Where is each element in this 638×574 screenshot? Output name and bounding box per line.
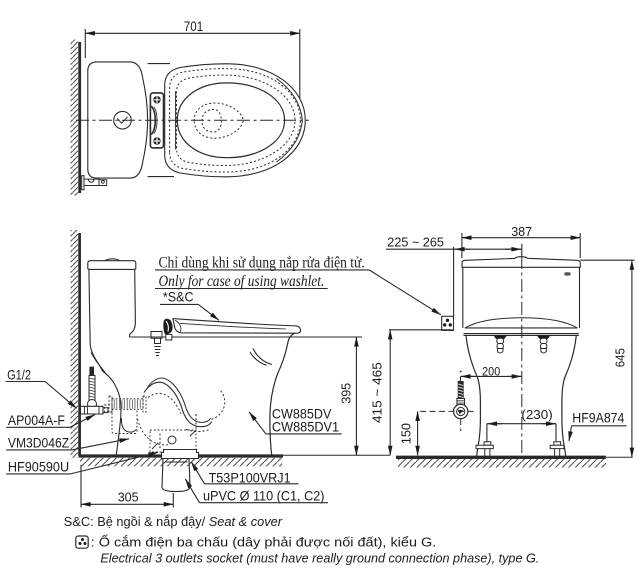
- svg-text:387: 387: [511, 224, 532, 239]
- svg-text:305: 305: [118, 489, 139, 504]
- svg-text:CW885DV1: CW885DV1: [272, 418, 339, 434]
- svg-text:225 ~ 265: 225 ~ 265: [387, 234, 444, 249]
- svg-text:T53P100VRJ1: T53P100VRJ1: [209, 470, 291, 486]
- svg-text:HF90590U: HF90590U: [8, 459, 69, 475]
- svg-text:VM3D046Z: VM3D046Z: [8, 435, 70, 451]
- svg-text:Chỉ dùng khi sử dụng nắp rửa đ: Chỉ dùng khi sử dụng nắp rửa điện tử.: [159, 255, 365, 272]
- svg-text:415 ~ 465: 415 ~ 465: [369, 362, 384, 423]
- svg-text:uPVC Ø 110 (C1, C2): uPVC Ø 110 (C1, C2): [203, 487, 325, 503]
- svg-text:Electrical 3 outlets socket (m: Electrical 3 outlets socket (must have r…: [100, 550, 539, 565]
- svg-text:*S&C: *S&C: [163, 288, 194, 304]
- svg-text:150: 150: [399, 423, 414, 444]
- svg-text:645: 645: [613, 348, 628, 367]
- svg-text:395: 395: [339, 383, 354, 404]
- svg-text:S&C: Bệ ngồi & nắp đậy/ Seat &: S&C: Bệ ngồi & nắp đậy/ Seat & cover: [64, 514, 283, 529]
- svg-text:200: 200: [482, 364, 500, 378]
- svg-text:701: 701: [184, 18, 204, 34]
- svg-text:G1/2: G1/2: [7, 366, 31, 382]
- svg-text:: Ổ cắm điện ba chấu (dây phải: : Ổ cắm điện ba chấu (dây phải được nối …: [91, 534, 437, 549]
- svg-text:AP004A-F: AP004A-F: [8, 412, 65, 428]
- svg-text:HF9A874: HF9A874: [572, 410, 624, 426]
- svg-text:(230): (230): [521, 408, 552, 422]
